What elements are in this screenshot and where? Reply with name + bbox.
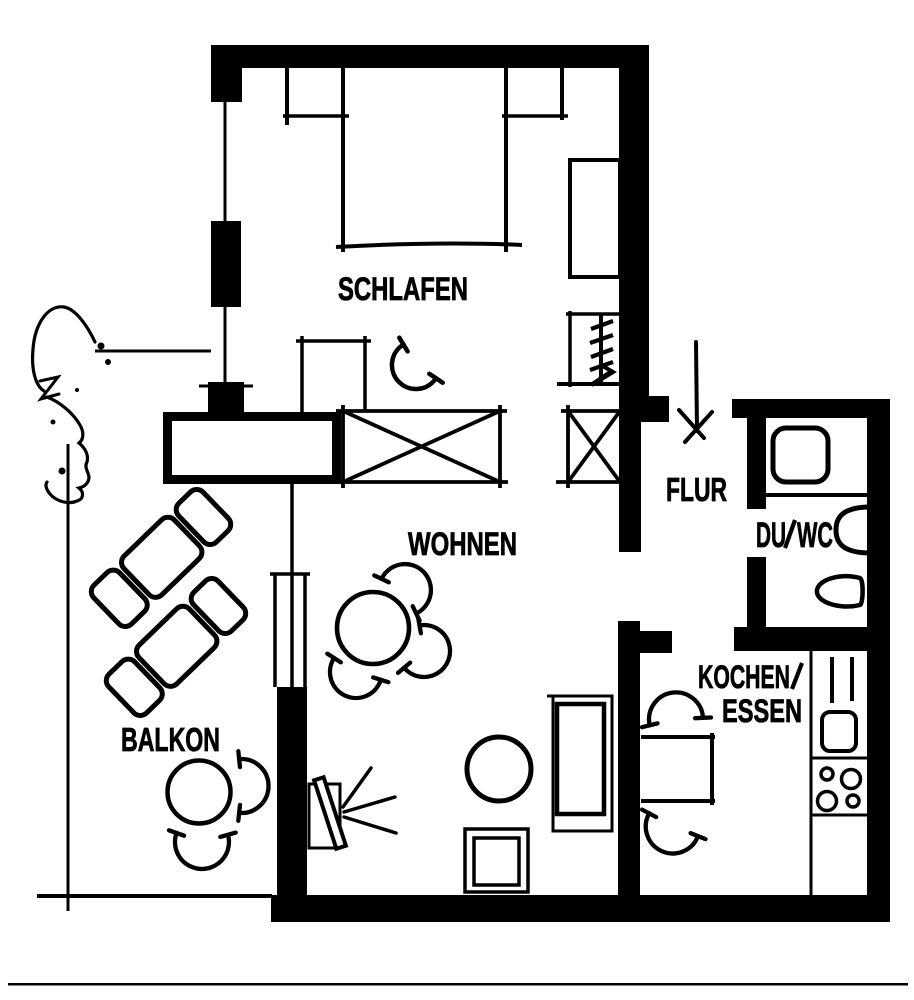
svg-text:WC: WC — [797, 515, 833, 555]
svg-text:DU: DU — [756, 515, 786, 555]
svg-text:BALKON: BALKON — [121, 721, 220, 758]
svg-text:KOCHEN: KOCHEN — [698, 659, 790, 695]
svg-text:SCHLAFEN: SCHLAFEN — [338, 271, 468, 307]
svg-text:FLUR: FLUR — [666, 471, 727, 508]
svg-text:WOHNEN: WOHNEN — [408, 526, 517, 562]
svg-text:ESSEN: ESSEN — [722, 693, 802, 729]
